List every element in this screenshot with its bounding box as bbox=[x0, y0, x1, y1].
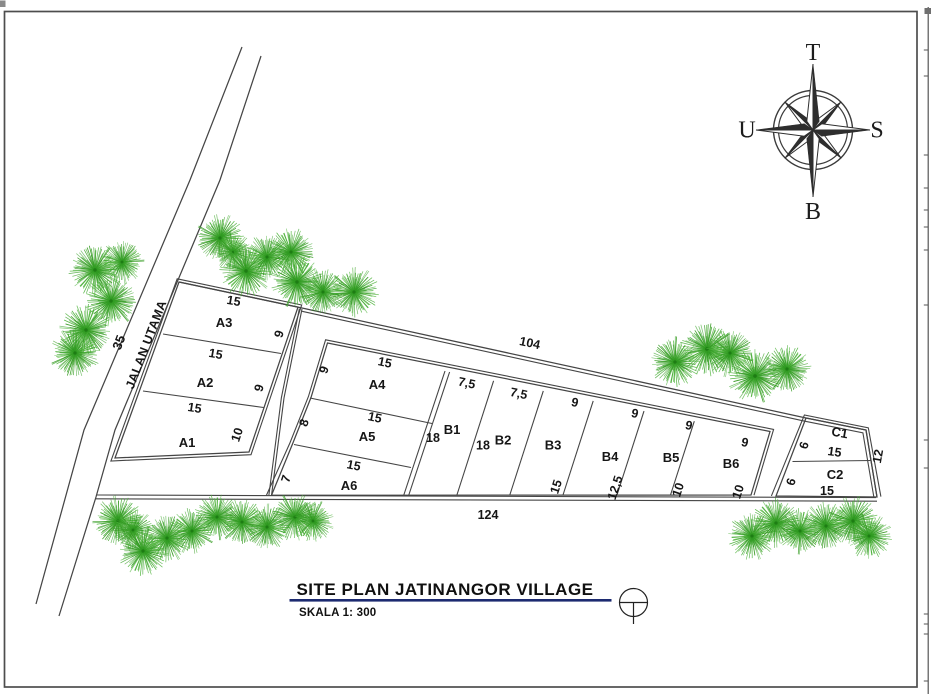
svg-text:15: 15 bbox=[377, 354, 394, 371]
svg-text:15: 15 bbox=[367, 409, 384, 426]
svg-text:A4: A4 bbox=[369, 377, 386, 392]
svg-text:15: 15 bbox=[208, 346, 224, 362]
svg-text:U: U bbox=[738, 118, 755, 144]
svg-text:A2: A2 bbox=[197, 375, 214, 390]
svg-text:B5: B5 bbox=[663, 450, 680, 465]
svg-text:124: 124 bbox=[478, 508, 499, 522]
svg-text:T: T bbox=[806, 40, 821, 66]
svg-text:A6: A6 bbox=[341, 478, 358, 493]
svg-text:C2: C2 bbox=[827, 467, 844, 482]
svg-text:15: 15 bbox=[226, 293, 242, 309]
svg-text:12: 12 bbox=[870, 448, 886, 464]
svg-text:B4: B4 bbox=[602, 449, 619, 464]
svg-text:A1: A1 bbox=[179, 435, 196, 450]
svg-text:SITE PLAN JATINANGOR VILLAGE: SITE PLAN JATINANGOR VILLAGE bbox=[296, 580, 593, 599]
svg-text:18: 18 bbox=[476, 439, 490, 453]
svg-text:18: 18 bbox=[426, 431, 440, 445]
svg-text:B: B bbox=[805, 199, 821, 225]
svg-text:C1: C1 bbox=[830, 424, 849, 442]
svg-text:B6: B6 bbox=[723, 456, 740, 471]
svg-text:B2: B2 bbox=[495, 433, 512, 448]
svg-text:15: 15 bbox=[346, 457, 362, 473]
svg-text:SKALA 1: 300: SKALA 1: 300 bbox=[299, 607, 376, 619]
svg-text:A5: A5 bbox=[359, 429, 376, 444]
svg-text:15: 15 bbox=[187, 400, 203, 416]
svg-text:15: 15 bbox=[827, 444, 843, 460]
svg-text:S: S bbox=[870, 118, 883, 144]
svg-text:A3: A3 bbox=[216, 315, 233, 330]
svg-text:B3: B3 bbox=[545, 438, 562, 453]
svg-text:B1: B1 bbox=[444, 422, 461, 437]
svg-text:15: 15 bbox=[820, 484, 834, 498]
